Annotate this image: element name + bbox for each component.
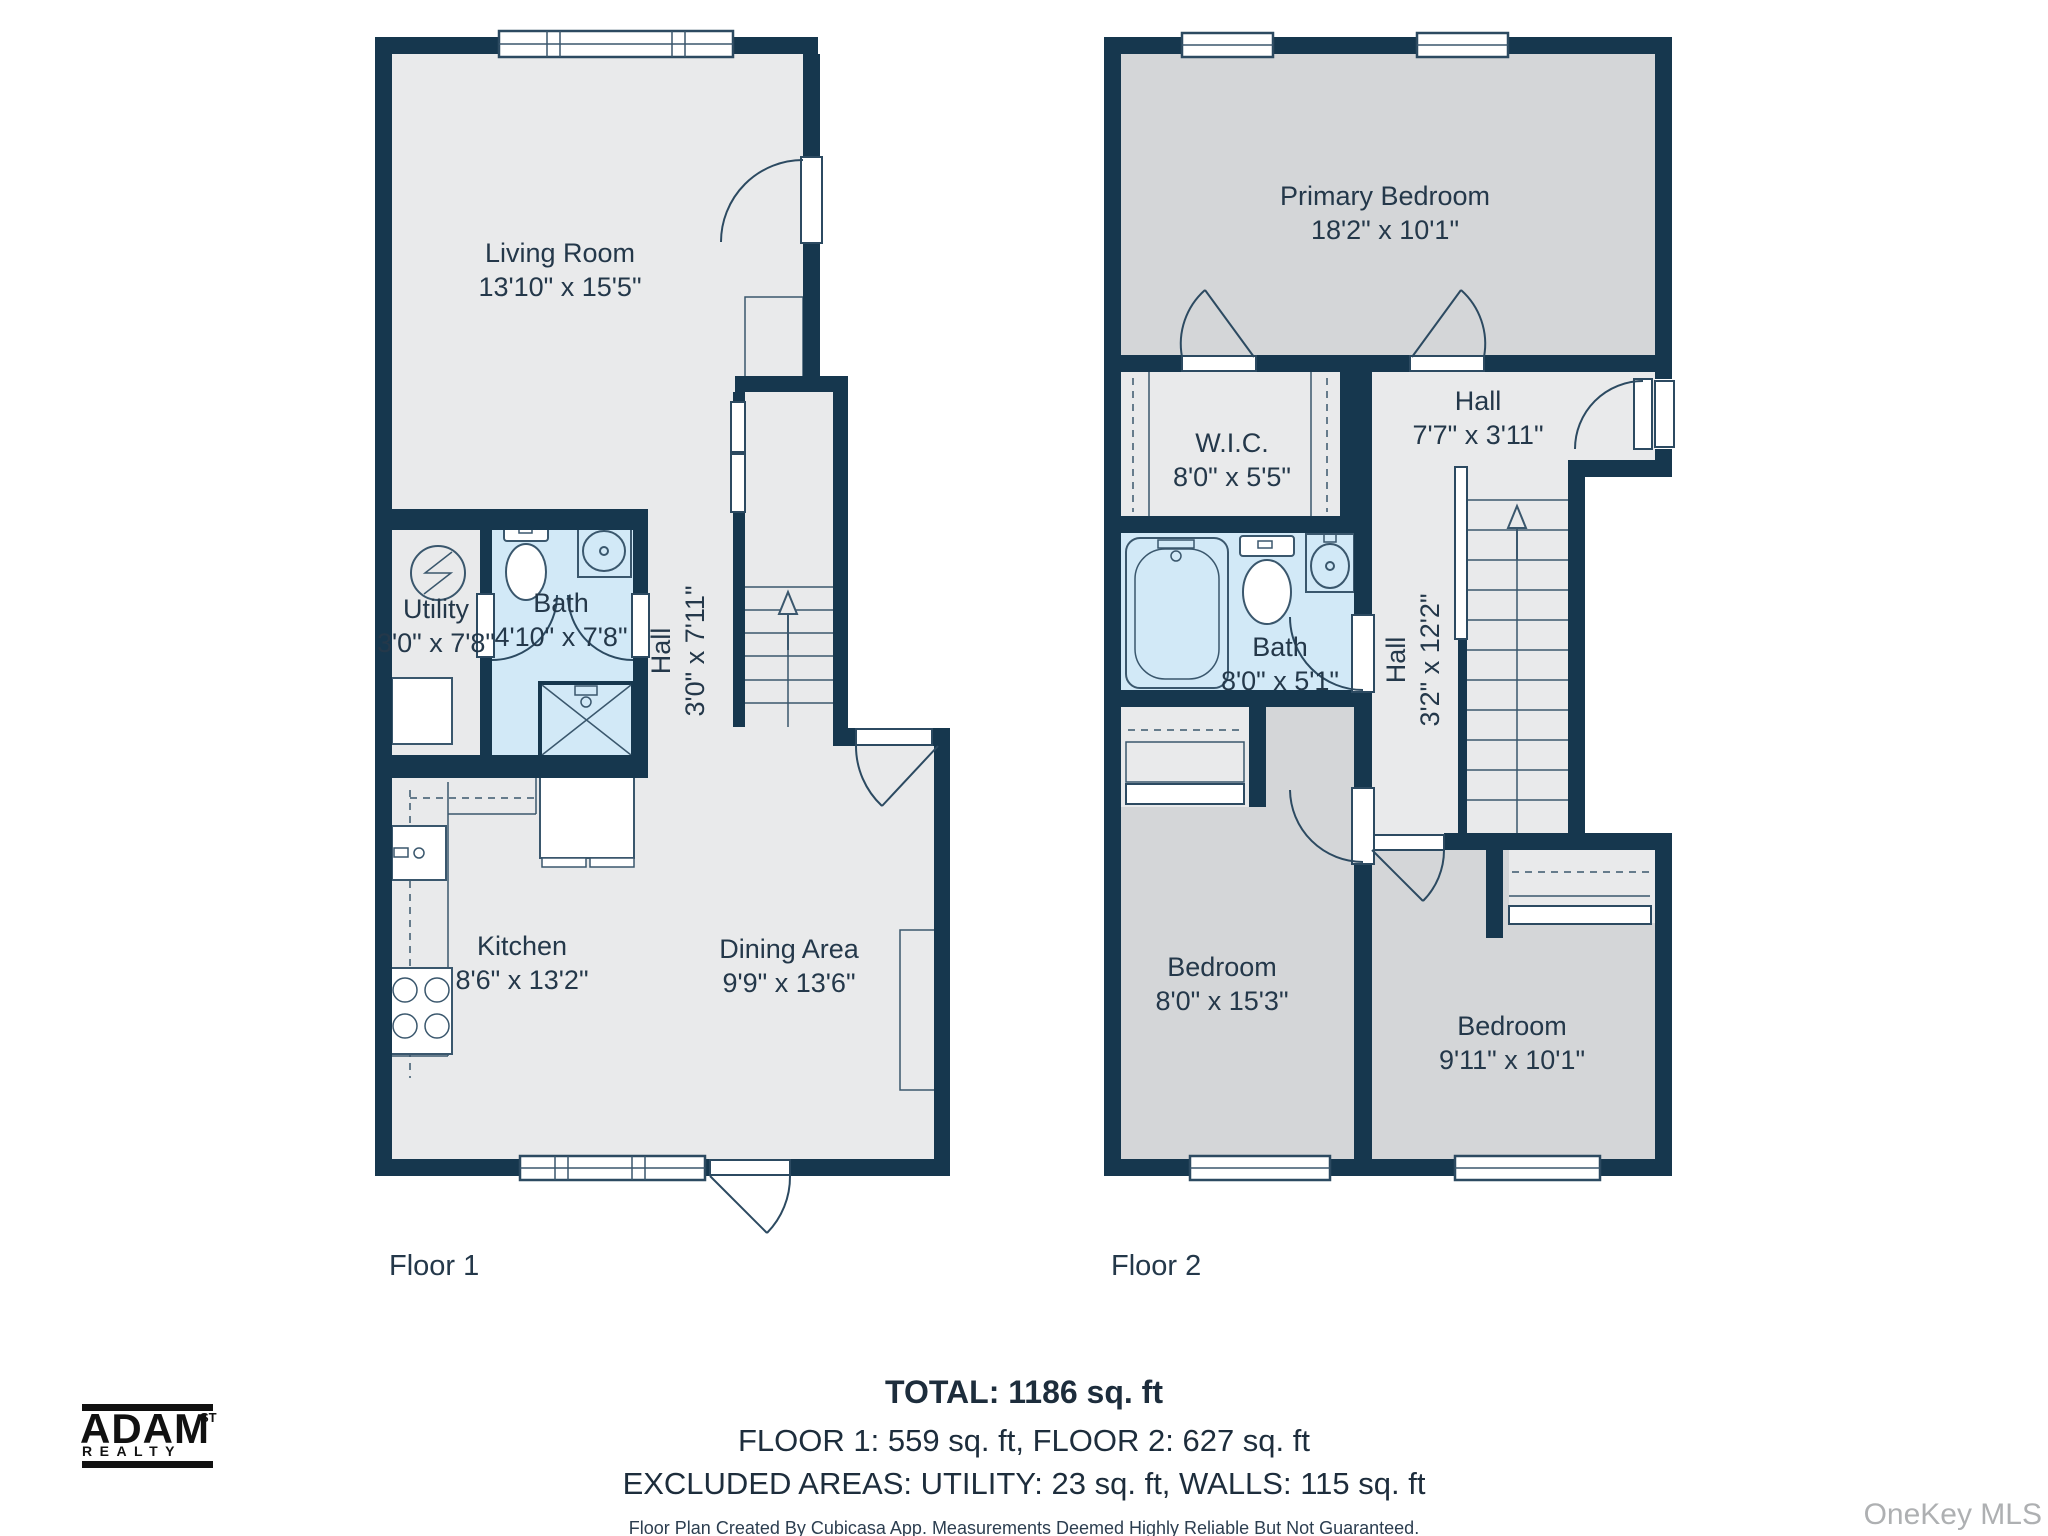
primary-window-left (1182, 33, 1273, 57)
living-room-label: Living Room (485, 238, 635, 268)
stair-hall-panel (731, 454, 745, 512)
floor2-plan: Primary Bedroom 18'2" x 10'1" W.I.C. 8'0… (1104, 33, 1674, 1180)
onekey-mls-watermark: OneKey MLS (1864, 1498, 2042, 1531)
logo-subtitle: REALTY (82, 1443, 182, 1459)
hall-upper-dims: 7'7" x 3'11" (1412, 420, 1543, 450)
hall-label: Hall (646, 628, 676, 675)
dining-dims: 9'9" x 13'6" (722, 968, 855, 998)
hall-lower-label: Hall (1381, 637, 1411, 684)
summary-disclaimer: Floor Plan Created By Cubicasa App. Meas… (629, 1518, 1419, 1536)
floor-plan-page: Living Room 13'10" x 15'5" Utility 3'0" … (0, 0, 2048, 1536)
floor1-room-fills (392, 54, 934, 1176)
summary-excluded: EXCLUDED AREAS: UTILITY: 23 sq. ft, WALL… (623, 1466, 1426, 1501)
summary-floors: FLOOR 1: 559 sq. ft, FLOOR 2: 627 sq. ft (738, 1423, 1310, 1458)
kitchen-sink-icon (392, 826, 446, 880)
hall-lower-dims: 3'2" x 12'2" (1415, 593, 1445, 726)
shower-icon (540, 683, 633, 757)
floor2-caption: Floor 2 (1111, 1250, 1201, 1282)
floor1-plan: Living Room 13'10" x 15'5" Utility 3'0" … (375, 31, 950, 1233)
dining-window (520, 1156, 705, 1180)
stove-icon (388, 968, 452, 1054)
primary-bedroom-dims: 18'2" x 10'1" (1311, 215, 1459, 245)
adam-realty-logo: ADAM ST REALTY (80, 1404, 217, 1468)
bath2-dims: 8'0" x 5'1" (1221, 666, 1339, 696)
logo-superscript: ST (200, 1410, 217, 1425)
toilet2-icon (1240, 536, 1294, 624)
floor1-caption: Floor 1 (389, 1250, 479, 1282)
wic-dims: 8'0" x 5'5" (1173, 462, 1291, 492)
bedroom-right-window (1455, 1156, 1600, 1180)
summary-total: TOTAL: 1186 sq. ft (885, 1374, 1163, 1410)
stair-hall-panel (731, 402, 745, 452)
dining-label: Dining Area (719, 934, 860, 964)
utility-equipment (392, 678, 452, 744)
logo-bottom-bar (82, 1461, 213, 1468)
hall-stairs-floor (648, 392, 848, 778)
bedroom-left-label: Bedroom (1167, 952, 1277, 982)
main-entry-door (710, 1160, 790, 1233)
utility-label: Utility (403, 594, 469, 624)
stair-half-wall (1455, 467, 1467, 639)
bedroom-right-dims: 9'11" x 10'1" (1439, 1045, 1585, 1075)
summary-block: TOTAL: 1186 sq. ft FLOOR 1: 559 sq. ft, … (623, 1374, 1426, 1536)
bedroom-right-label: Bedroom (1457, 1011, 1567, 1041)
kitchen-label: Kitchen (477, 931, 567, 961)
bedroom-left-dims: 8'0" x 15'3" (1155, 986, 1288, 1016)
bath-dims: 4'10" x 7'8" (494, 622, 627, 652)
living-room-dims: 13'10" x 15'5" (478, 272, 641, 302)
floor-plan-canvas: Living Room 13'10" x 15'5" Utility 3'0" … (0, 0, 2048, 1536)
hall-dims: 3'0" x 7'11" (680, 585, 710, 716)
bath-label: Bath (533, 588, 589, 618)
fridge-icon (540, 772, 634, 867)
living-room-window (499, 31, 733, 57)
primary-bedroom-label: Primary Bedroom (1280, 181, 1490, 211)
wic-label: W.I.C. (1195, 428, 1269, 458)
bath2-label: Bath (1252, 632, 1308, 662)
utility-dims: 3'0" x 7'8" (377, 628, 495, 658)
bedroom-left-window (1190, 1156, 1330, 1180)
hall-upper-label: Hall (1455, 386, 1502, 416)
primary-window-right (1417, 33, 1508, 57)
kitchen-dims: 8'6" x 13'2" (455, 965, 588, 995)
